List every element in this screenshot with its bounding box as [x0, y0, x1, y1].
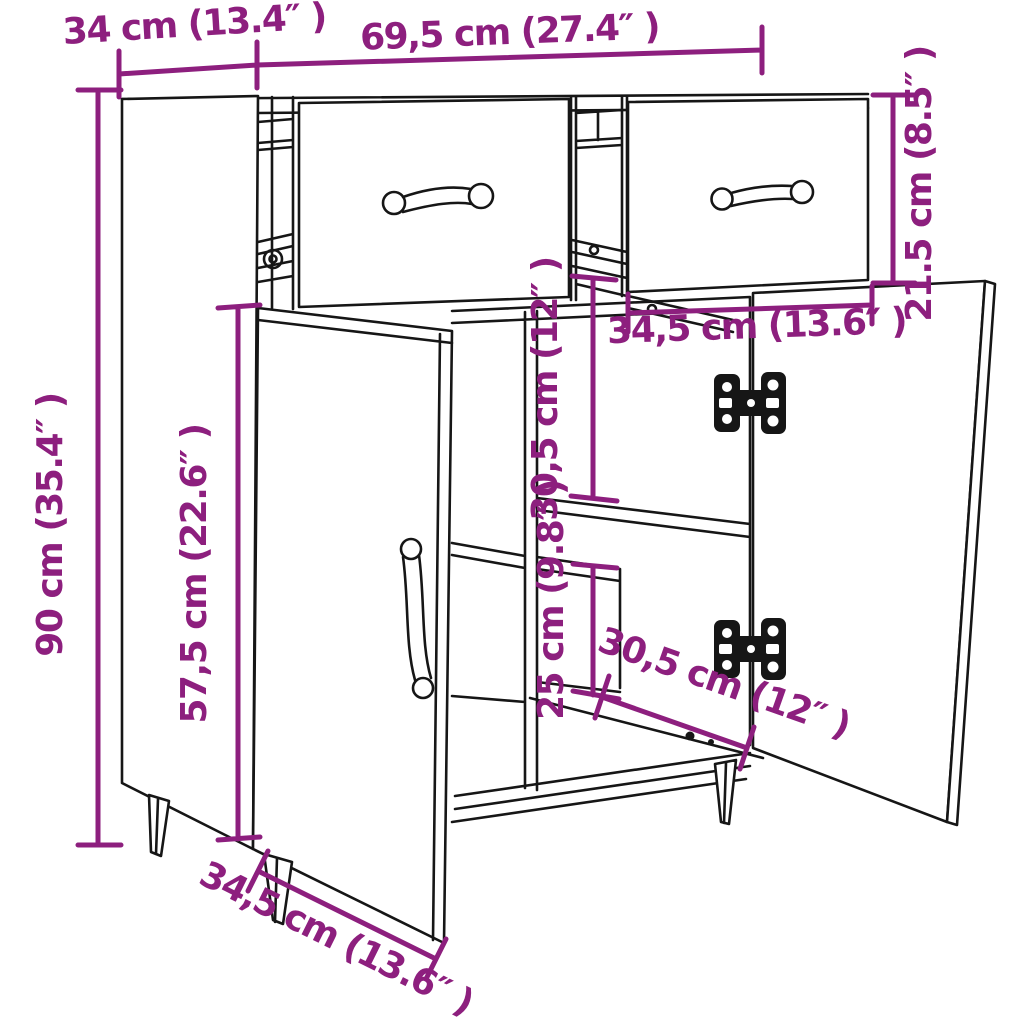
right-drawer	[628, 99, 868, 292]
hinge-screw	[768, 662, 779, 673]
dim-label-drawer-height: 21.5 cm (8.5″ )	[899, 46, 940, 322]
right-door-open	[753, 281, 995, 825]
dim-label-door-height: 57,5 cm (22.6″ )	[174, 424, 215, 723]
left-door-open	[253, 308, 452, 943]
shelf-pin-hole-icon	[686, 732, 695, 741]
right-drawer-front	[628, 99, 868, 292]
hinge-slot	[719, 398, 732, 408]
shelf-pin-hole-icon	[708, 739, 714, 745]
hinge-pivot	[747, 399, 755, 407]
hinge-slot	[719, 644, 732, 654]
hinge-pivot	[747, 645, 755, 653]
hinge-screw	[722, 414, 732, 424]
handle-knob	[413, 678, 433, 698]
sideboard-dimension-diagram: 34 cm (13.4″ ) 69,5 cm (27.4″ ) 21.5 cm …	[0, 0, 1024, 1024]
right-door-panel	[753, 281, 985, 822]
diagram-canvas: 34 cm (13.4″ ) 69,5 cm (27.4″ ) 21.5 cm …	[0, 0, 1024, 1024]
hinge-screw	[768, 416, 779, 427]
handle-knob	[791, 181, 813, 203]
hinge-slot	[766, 398, 779, 408]
hinge-screw	[768, 626, 779, 637]
hinge-screw	[722, 382, 732, 392]
handle-knob	[383, 192, 405, 214]
handle-knob	[712, 189, 733, 210]
hinge-screw	[768, 380, 779, 391]
hinge-screw	[722, 628, 732, 638]
dim-label-overall-height: 90 cm (35.4″ )	[30, 393, 71, 656]
hinge-slot	[766, 644, 779, 654]
left-door-panel	[253, 308, 452, 943]
dim-label-lower-compartment: 25 cm (9.8″ )	[531, 480, 572, 720]
